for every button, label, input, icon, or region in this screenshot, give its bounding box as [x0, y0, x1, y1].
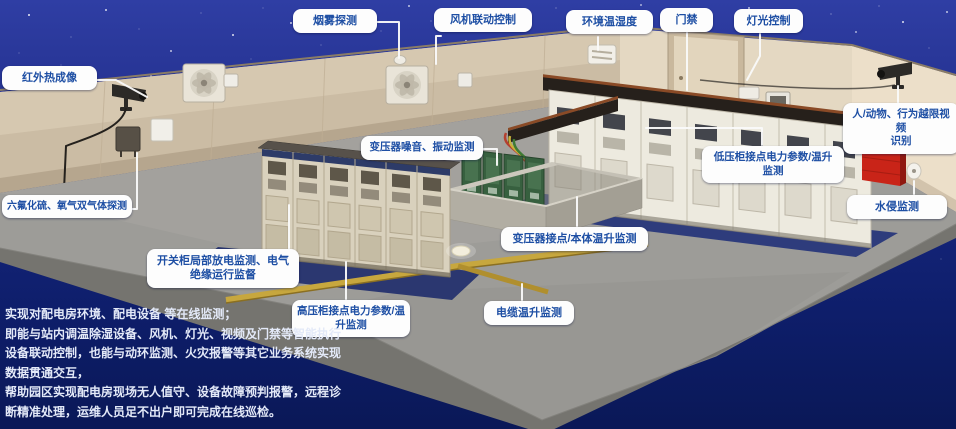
description-line: 帮助园区实现配电房现场无人值守、设备故障预判报警，远程诊	[5, 383, 341, 403]
description-line: 设备联动控制，也能与动环监测、火灾报警等其它业务系统实现	[5, 344, 341, 364]
callout-video-recognition: 人/动物、行为越限视频 识别	[843, 103, 956, 154]
wall-fan-left	[183, 64, 225, 102]
callout-transformer-contact-temp: 变压器接点/本体温升监测	[501, 227, 648, 251]
light-switch-device	[739, 87, 759, 99]
temp-humidity-sensor	[588, 45, 616, 64]
description-line: 即能与站内调温除湿设备、风机、灯光、视频及门禁等智能执行	[5, 325, 341, 345]
floor-light	[446, 243, 476, 259]
water-sensor-device	[907, 163, 921, 179]
callout-fan-linkage-control: 风机联动控制	[434, 8, 532, 32]
callout-env-temp-humidity: 环境温湿度	[566, 10, 653, 34]
callout-door-access: 门禁	[660, 8, 713, 32]
callout-partial-discharge: 开关柜局部放电监测、电气 绝缘运行监督	[147, 249, 299, 288]
description-line: 实现对配电房环境、配电设备 等在线监测；	[5, 305, 341, 325]
description-line: 断精准处理，运维人员足不出户即可完成在线巡检。	[5, 403, 341, 423]
description-line: 数据贯通交互，	[5, 364, 341, 384]
callout-cable-temp-monitoring: 电缆温升监测	[484, 301, 574, 325]
wall-fan-back	[386, 66, 428, 104]
wall-box-white	[151, 119, 173, 141]
power-room-monitoring-diagram: 红外热成像 烟雾探测 风机联动控制 环境温湿度 门禁 灯光控制 人/动物、行为越…	[0, 0, 956, 429]
wall-switch-left	[224, 74, 238, 87]
callout-infrared-thermal-imaging: 红外热成像	[2, 66, 97, 90]
callout-water-intrusion: 水侵监测	[847, 195, 947, 219]
callout-smoke-detection: 烟雾探测	[293, 9, 377, 33]
callout-light-control: 灯光控制	[734, 9, 803, 33]
callout-transformer-noise-vibration: 变压器噪音、振动监测	[361, 136, 483, 160]
wall-box-back	[458, 73, 472, 87]
feature-description: 实现对配电房环境、配电设备 等在线监测； 即能与站内调温除湿设备、风机、灯光、视…	[5, 305, 341, 422]
callout-gas-detection: 六氟化硫、氧气双气体探测	[2, 195, 132, 218]
callout-lv-cabinet-monitoring: 低压柜接点电力参数/温升 监测	[702, 146, 844, 183]
